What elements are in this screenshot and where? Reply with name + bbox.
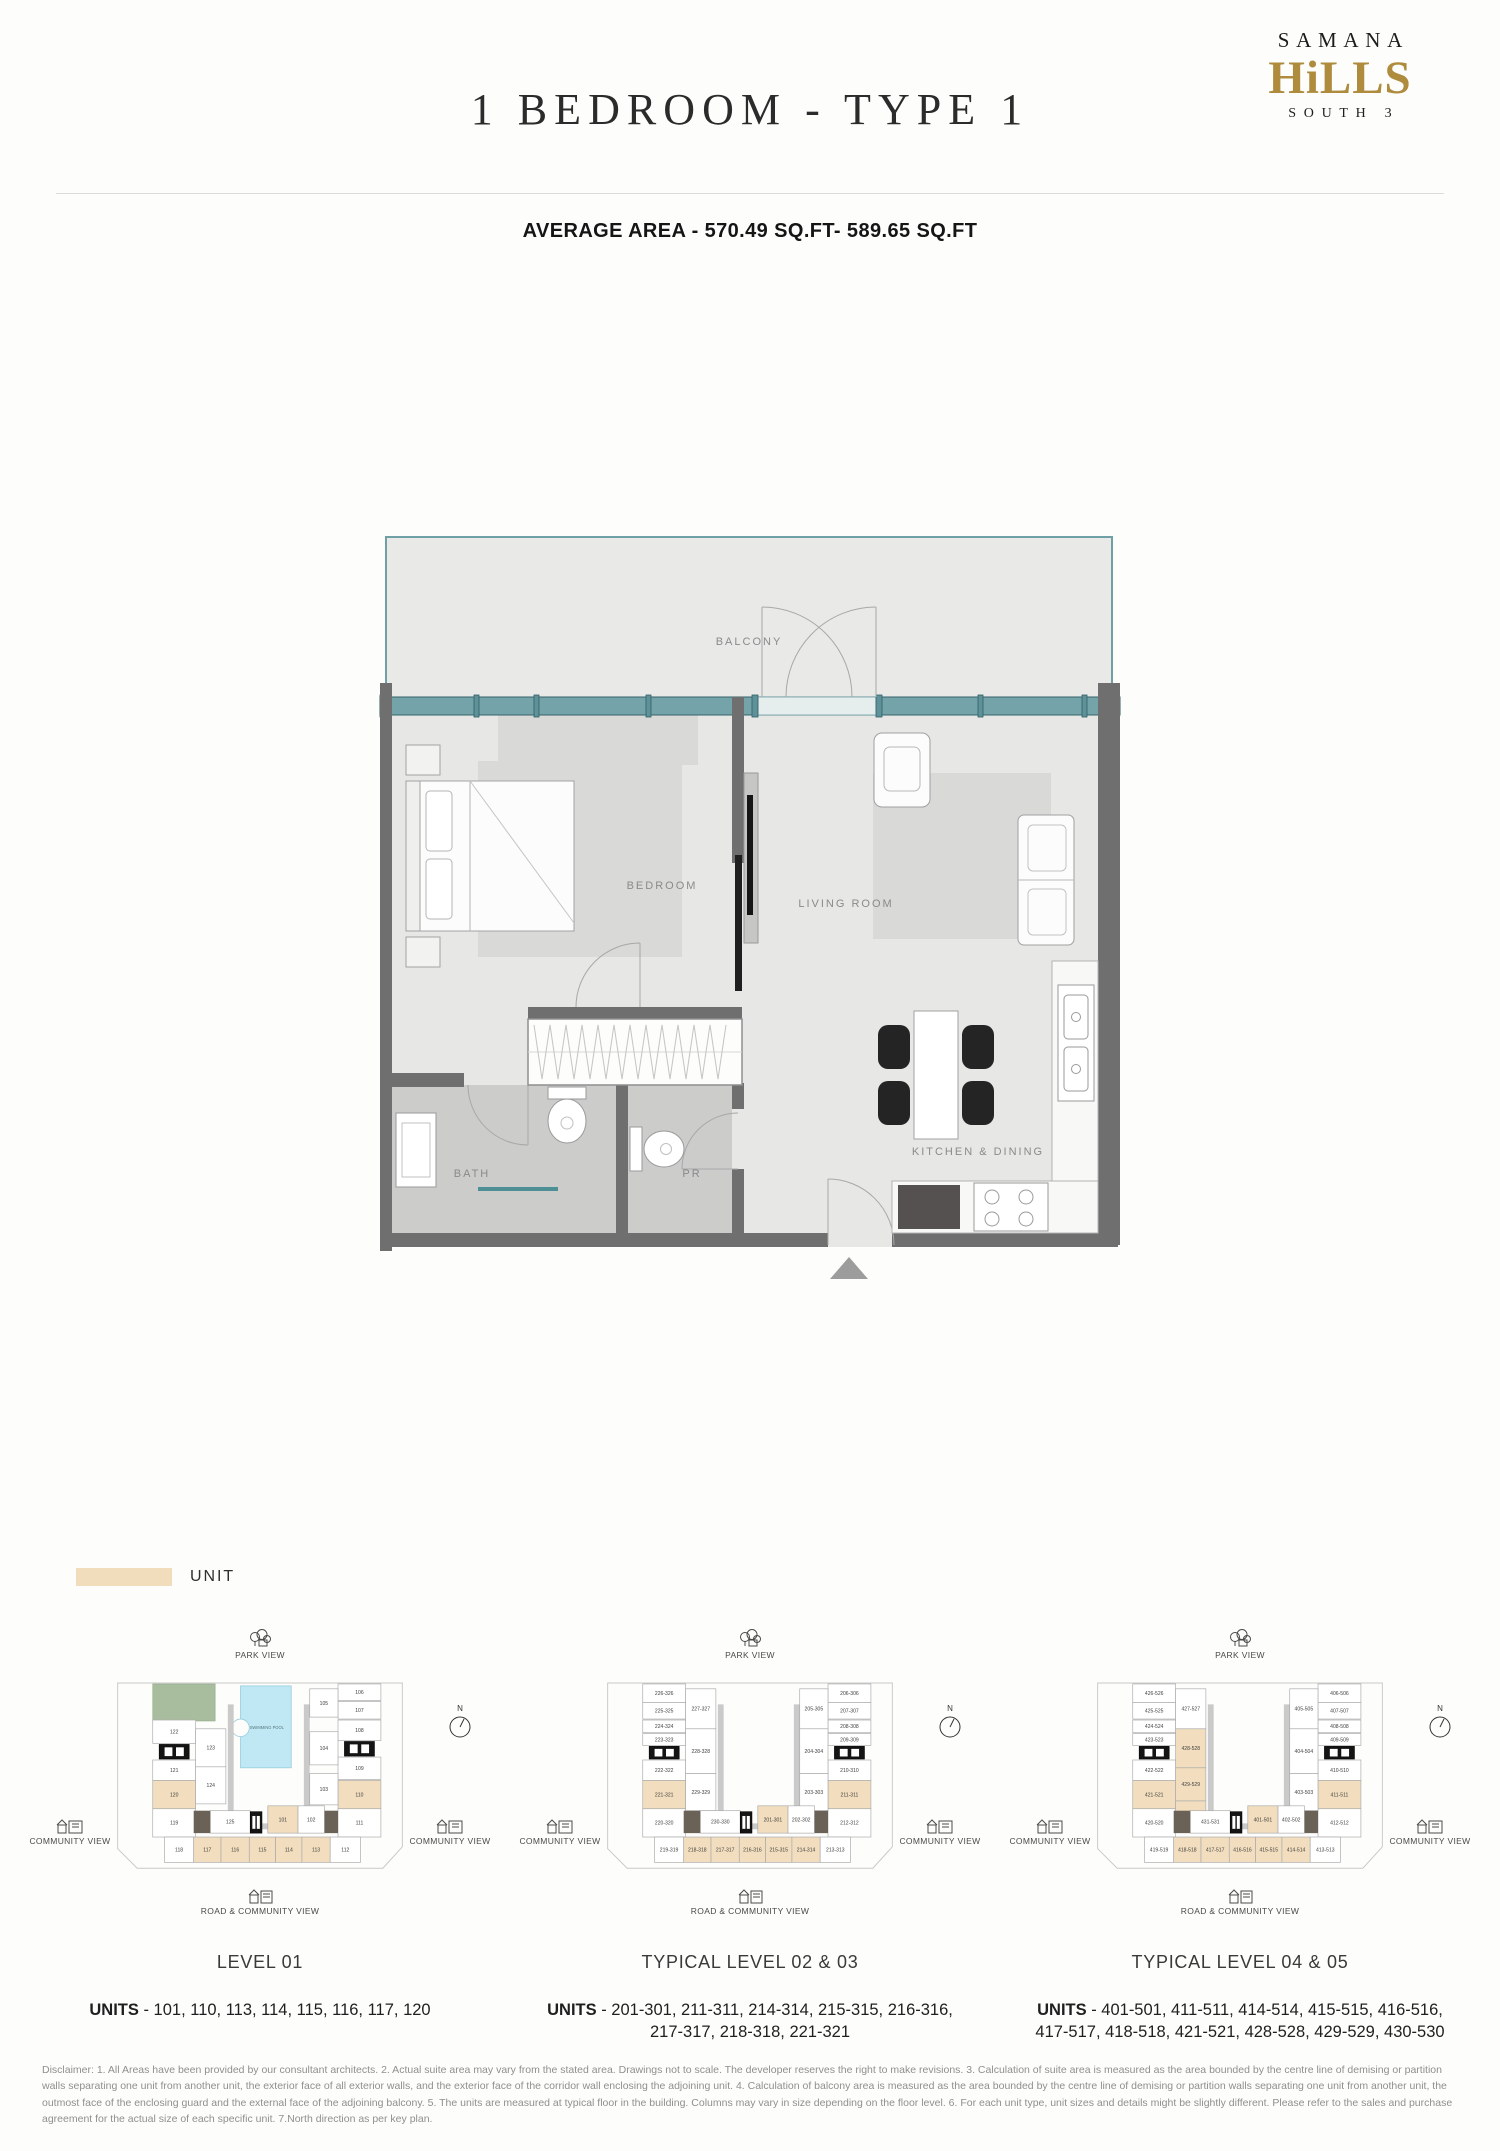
pool-label: SWIMMING POOL <box>250 1724 285 1729</box>
room-label-pr: PR <box>682 1168 701 1180</box>
balcony-floor <box>386 537 1112 699</box>
unit-number: 426-526 <box>1145 1691 1164 1697</box>
page-title: 1 BEDROOM - TYPE 1 <box>0 84 1500 135</box>
elevator-icon <box>834 1746 864 1759</box>
unit-number: 420-520 <box>1145 1820 1164 1826</box>
elevator-icon <box>1230 1811 1242 1832</box>
road-view-label: ROAD & COMMUNITY VIEW <box>201 1906 319 1916</box>
unit-legend-swatch <box>76 1568 172 1586</box>
building-icon <box>245 1886 275 1904</box>
unit-number: 115 <box>258 1847 266 1853</box>
sofa <box>1018 815 1074 945</box>
community-view-right: COMMUNITY VIEW <box>405 1816 495 1846</box>
road-view-label: ROAD & COMMUNITY VIEW <box>1181 1906 1299 1916</box>
unit-number: 412-512 <box>1330 1820 1349 1826</box>
unit-number: 418-518 <box>1178 1847 1197 1853</box>
park-view-label: PARK VIEW <box>235 1650 285 1660</box>
unit-number: 204-304 <box>805 1749 824 1755</box>
unit-number: 206-306 <box>840 1691 859 1697</box>
sliding-door <box>735 855 742 991</box>
unit-number: 119 <box>170 1820 178 1826</box>
unit-number: 121 <box>170 1768 179 1774</box>
room-label-living: LIVING ROOM <box>798 898 893 910</box>
stove <box>974 1183 1048 1231</box>
unit-number: 109 <box>355 1766 364 1772</box>
unit-number: 403-503 <box>1295 1790 1314 1796</box>
building-icon <box>925 1816 955 1834</box>
header-divider <box>56 193 1444 194</box>
unit-number: 230-330 <box>711 1819 730 1825</box>
unit-number: 429-529 <box>1181 1782 1200 1788</box>
unit-number: 108 <box>355 1728 364 1734</box>
building-icon <box>735 1886 765 1904</box>
unit-number: 221-321 <box>655 1792 674 1798</box>
unit-number: 104 <box>320 1746 329 1752</box>
unit-number: 124 <box>207 1783 216 1789</box>
keyplan-level-02-03: PARK VIEW COMMUNITY VIEW 226-326225-3252… <box>515 1628 985 2044</box>
armchair <box>874 733 930 807</box>
unit-number: 423-523 <box>1145 1737 1164 1743</box>
average-area-text: AVERAGE AREA - 570.49 SQ.FT- 589.65 SQ.F… <box>0 220 1500 243</box>
unit-legend: UNIT <box>76 1568 235 1586</box>
entry-marker <box>830 1257 868 1279</box>
unit-number: 229-329 <box>691 1790 710 1796</box>
unit-number: 112 <box>341 1847 349 1853</box>
unit-number: 411-511 <box>1331 1792 1349 1798</box>
stairs <box>194 1810 211 1832</box>
stairs <box>324 1810 338 1832</box>
unit-number: 401-501 <box>1254 1817 1273 1823</box>
room-label-balcony: BALCONY <box>716 636 783 648</box>
unit-number: 227-327 <box>691 1706 710 1712</box>
unit-number: 225-325 <box>655 1708 674 1714</box>
tree-icon <box>246 1628 274 1648</box>
unit-number: 228-328 <box>691 1749 710 1755</box>
unit-number: 117 <box>203 1847 211 1853</box>
unit-number: 405-505 <box>1295 1706 1314 1712</box>
floor-plan: BALCONY BEDROOM LIVING ROOM BATH PR KITC… <box>378 533 1122 1281</box>
unit-number: 424-524 <box>1145 1724 1164 1730</box>
unit-number: 218-318 <box>688 1847 707 1853</box>
compass: N <box>445 1704 475 1745</box>
compass-icon <box>1427 1714 1453 1740</box>
unit-number: 422-522 <box>1145 1768 1164 1774</box>
unit-number: 202-302 <box>792 1817 811 1823</box>
unit-number: 226-326 <box>655 1691 674 1697</box>
unit-number: 113 <box>312 1847 320 1853</box>
road-view-block: ROAD & COMMUNITY VIEW <box>201 1886 319 1936</box>
building-icon <box>435 1816 465 1834</box>
elevator-icon <box>1324 1746 1354 1759</box>
unit-number: 216-316 <box>743 1847 762 1853</box>
unit-number: 219-319 <box>660 1847 679 1853</box>
unit-number: 413-513 <box>1316 1847 1335 1853</box>
community-view-left: COMMUNITY VIEW <box>1005 1816 1095 1846</box>
unit-number: 425-525 <box>1145 1708 1164 1714</box>
unit-number: 410-510 <box>1330 1768 1349 1774</box>
fridge <box>898 1185 960 1229</box>
unit-number: 102 <box>307 1817 316 1823</box>
building-icon <box>1415 1816 1445 1834</box>
room-label-bedroom: BEDROOM <box>627 880 698 892</box>
park-view-label: PARK VIEW <box>725 1650 775 1660</box>
disclaimer-text: Disclaimer: 1. All Areas have been provi… <box>42 2062 1458 2127</box>
unit-number: 217-317 <box>716 1847 735 1853</box>
unit-number: 212-312 <box>840 1820 859 1826</box>
elevator-icon <box>344 1741 374 1756</box>
unit-number: 406-506 <box>1330 1691 1349 1697</box>
keyplan-level-01: PARK VIEW COMMUNITY VIEW SWIMMING POOL12… <box>25 1628 495 2021</box>
park-view-block: PARK VIEW <box>725 1628 775 1674</box>
unit-number: 210-310 <box>840 1768 859 1774</box>
unit-number: 207-307 <box>840 1708 859 1714</box>
compass-icon <box>447 1714 473 1740</box>
unit-number: 414-514 <box>1287 1847 1306 1853</box>
road-view-block: ROAD & COMMUNITY VIEW <box>1181 1886 1299 1936</box>
unit-number: 222-322 <box>655 1768 674 1774</box>
unit-number: 402-502 <box>1282 1817 1301 1823</box>
stairs <box>684 1810 701 1832</box>
unit-number: 211-311 <box>841 1792 859 1798</box>
unit-legend-label: UNIT <box>190 1568 235 1586</box>
road-view-block: ROAD & COMMUNITY VIEW <box>691 1886 809 1936</box>
unit-number: 114 <box>285 1847 293 1853</box>
garden-area <box>153 1683 215 1720</box>
brand-name: SAMANA <box>1257 30 1430 51</box>
tree-icon <box>1226 1628 1254 1648</box>
units-list: UNITS - 101, 110, 113, 114, 115, 116, 11… <box>89 1999 430 2021</box>
unit-number: 427-527 <box>1181 1706 1200 1712</box>
unit-number: 215-315 <box>769 1847 788 1853</box>
keyplan-caption: LEVEL 01 <box>217 1952 303 1973</box>
unit-number: 415-515 <box>1259 1847 1278 1853</box>
park-view-label: PARK VIEW <box>1215 1650 1265 1660</box>
unit-number: 416-516 <box>1233 1847 1252 1853</box>
community-view-left: COMMUNITY VIEW <box>515 1816 605 1846</box>
elevator-icon <box>250 1811 262 1832</box>
units-list: UNITS - 201-301, 211-311, 214-314, 215-3… <box>545 1999 955 2044</box>
unit-number: 201-301 <box>764 1817 783 1823</box>
unit-number: 116 <box>231 1847 239 1853</box>
building-icon <box>55 1816 85 1834</box>
unit-number: 209-309 <box>840 1737 859 1743</box>
community-view-right: COMMUNITY VIEW <box>1385 1816 1475 1846</box>
unit-number: 220-320 <box>655 1820 674 1826</box>
building-icon <box>1225 1886 1255 1904</box>
unit-number: 223-323 <box>655 1737 674 1743</box>
unit-number: 431-531 <box>1201 1819 1220 1825</box>
unit-number: 118 <box>175 1847 183 1853</box>
unit-number: 419-519 <box>1150 1847 1169 1853</box>
unit-number: 106 <box>355 1690 364 1696</box>
unit-number: 417-517 <box>1206 1847 1225 1853</box>
community-view-right: COMMUNITY VIEW <box>895 1816 985 1846</box>
unit-number: 125 <box>226 1819 235 1825</box>
compass: N <box>1425 1704 1455 1745</box>
unit-number: 409-509 <box>1330 1737 1349 1743</box>
unit-number: 107 <box>355 1708 364 1714</box>
building-icon <box>1035 1816 1065 1834</box>
community-view-left: COMMUNITY VIEW <box>25 1816 115 1846</box>
park-view-block: PARK VIEW <box>235 1628 285 1674</box>
wardrobe <box>528 1019 742 1085</box>
unit-number: 224-324 <box>655 1724 674 1730</box>
elevator-icon <box>649 1746 679 1759</box>
compass: N <box>935 1704 965 1745</box>
unit-number: 120 <box>170 1792 179 1798</box>
unit-number: 404-504 <box>1295 1749 1314 1755</box>
stairs <box>814 1810 828 1832</box>
room-label-bath: BATH <box>454 1168 491 1180</box>
unit-number: 203-303 <box>805 1790 824 1796</box>
room-label-kitchen: KITCHEN & DINING <box>912 1146 1044 1158</box>
park-view-block: PARK VIEW <box>1215 1628 1265 1674</box>
keyplan-drawing: SWIMMING POOL122121120119123124106107108… <box>104 1677 416 1882</box>
tv-unit <box>744 773 758 943</box>
compass-icon <box>937 1714 963 1740</box>
unit-number: 103 <box>320 1787 329 1793</box>
unit-number: 122 <box>170 1729 179 1735</box>
tree-icon <box>736 1628 764 1648</box>
elevator-icon <box>740 1811 752 1832</box>
elevator-icon <box>1139 1746 1169 1759</box>
keyplan-caption: TYPICAL LEVEL 02 & 03 <box>642 1952 859 1973</box>
stairs <box>1304 1810 1318 1832</box>
brochure-page: SAMANA HiLLS SOUTH 3 1 BEDROOM - TYPE 1 … <box>0 0 1500 2151</box>
unit-number: 213-313 <box>826 1847 845 1853</box>
unit-number: 101 <box>279 1817 288 1823</box>
unit-number: 408-508 <box>1330 1724 1349 1730</box>
unit-number: 407-507 <box>1330 1708 1349 1714</box>
unit-number: 111 <box>356 1820 364 1826</box>
unit-number: 123 <box>207 1745 216 1751</box>
keyplan-drawing: 426-526425-525424-524423-523422-522421-5… <box>1084 1677 1396 1882</box>
elevator-icon <box>159 1744 189 1759</box>
unit-number: 428-528 <box>1181 1746 1200 1752</box>
unit-number: 208-308 <box>840 1724 859 1730</box>
building-icon <box>545 1816 575 1834</box>
keyplan-caption: TYPICAL LEVEL 04 & 05 <box>1132 1952 1349 1973</box>
keyplan-drawing: 226-326225-325224-324223-323222-322221-3… <box>594 1677 906 1882</box>
units-list: UNITS - 401-501, 411-511, 414-514, 415-5… <box>1035 1999 1445 2044</box>
unit-number: 214-314 <box>797 1847 816 1853</box>
keyplan-level-04-05: PARK VIEW COMMUNITY VIEW 426-526425-5254… <box>1005 1628 1475 2044</box>
unit-number: 421-521 <box>1145 1792 1164 1798</box>
unit-number: 110 <box>355 1792 363 1798</box>
unit-number: 105 <box>320 1700 329 1706</box>
unit-number: 205-305 <box>805 1706 824 1712</box>
stairs <box>1174 1810 1191 1832</box>
road-view-label: ROAD & COMMUNITY VIEW <box>691 1906 809 1916</box>
